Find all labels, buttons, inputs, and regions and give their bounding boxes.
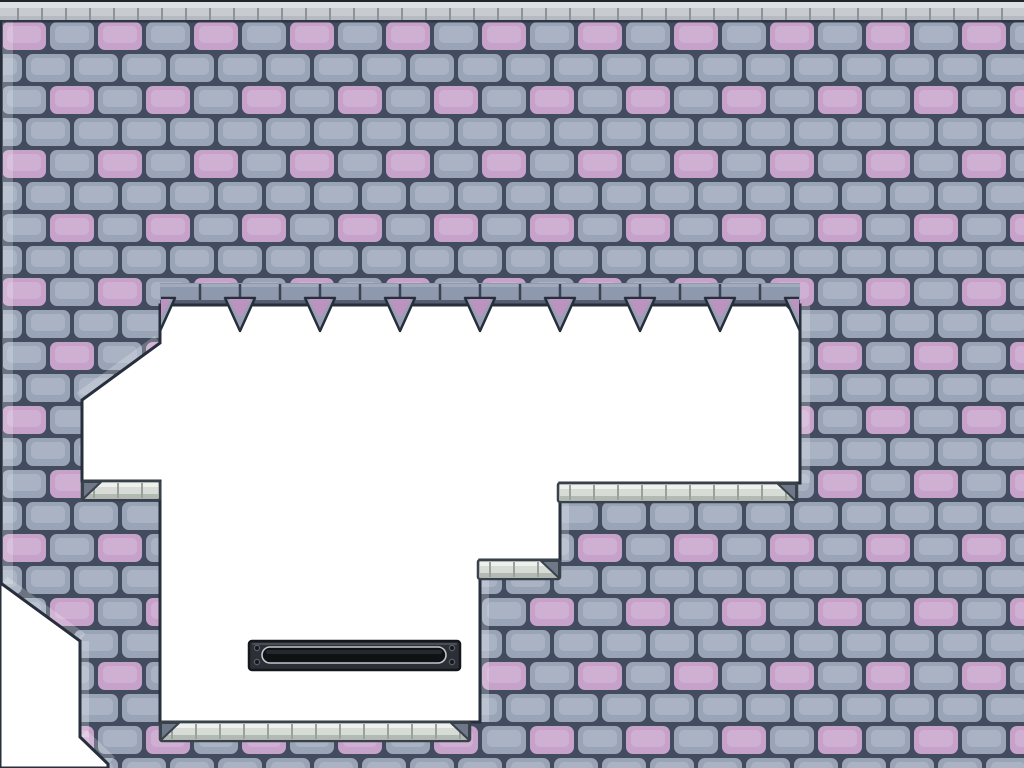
screw-icon xyxy=(449,659,454,664)
top-metal-strip xyxy=(0,0,1024,23)
level-canvas[interactable] xyxy=(0,0,1024,768)
stone-ledge xyxy=(478,560,560,579)
screw-icon xyxy=(254,659,259,664)
screw-icon xyxy=(449,645,454,650)
stone-ledge xyxy=(160,722,470,741)
door-top-highlight xyxy=(252,643,457,645)
stone-ledge xyxy=(558,483,797,502)
door-slot xyxy=(262,647,446,663)
ceiling-spikes xyxy=(145,298,815,331)
screw-icon xyxy=(254,645,259,650)
brick-wall xyxy=(0,0,1024,768)
game-viewport xyxy=(0,0,1024,768)
stone-ledge xyxy=(82,481,160,500)
metal-door[interactable] xyxy=(249,641,460,670)
door-slot-sheen xyxy=(266,650,442,654)
